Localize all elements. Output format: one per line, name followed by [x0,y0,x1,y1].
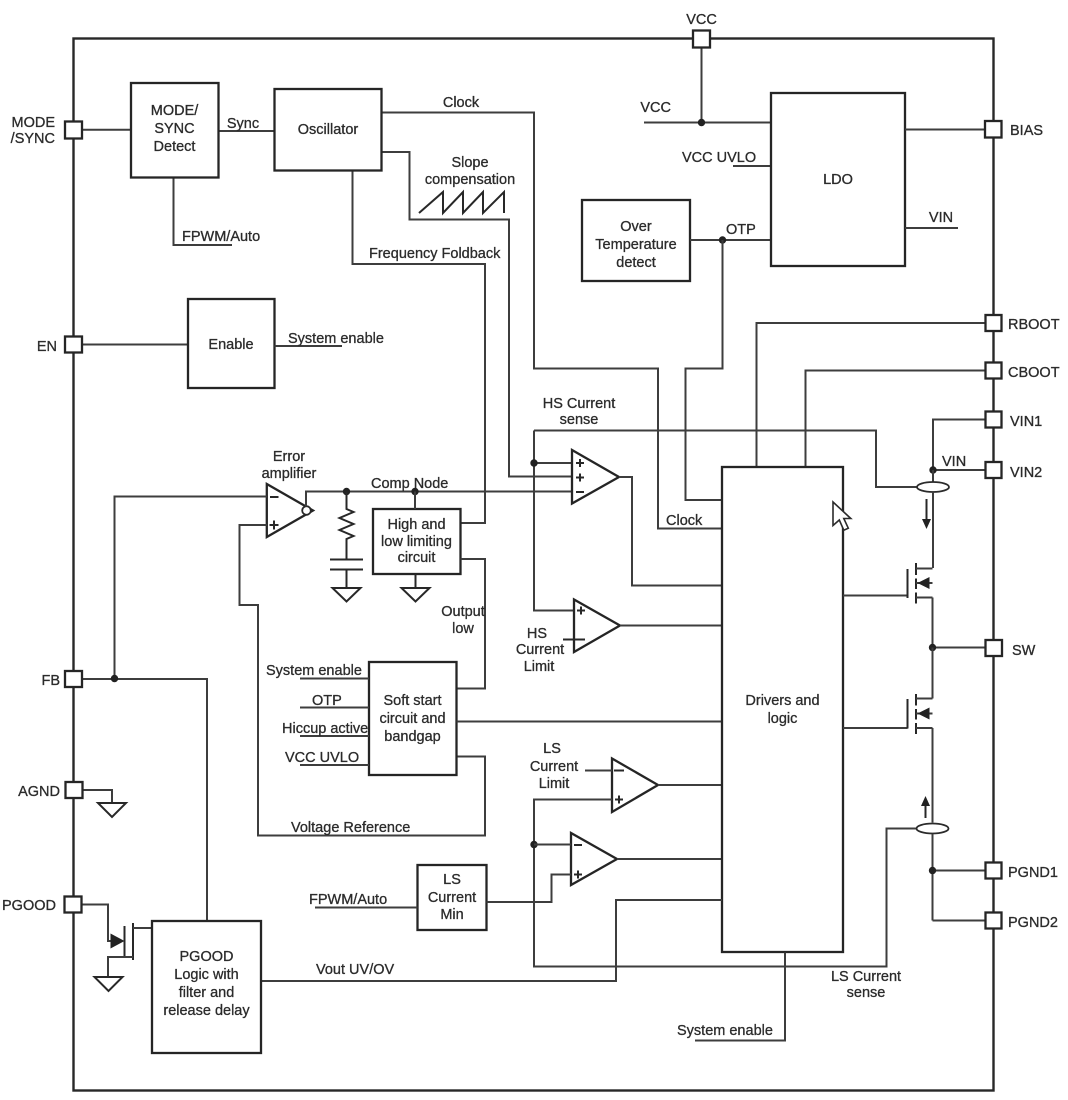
svg-text:Hiccup active: Hiccup active [282,721,368,737]
svg-text:VIN2: VIN2 [1010,465,1042,481]
svg-text:RBOOT: RBOOT [1008,317,1060,333]
svg-text:Over: Over [620,219,652,235]
svg-text:compensation: compensation [425,172,515,188]
svg-text:release delay: release delay [163,1003,250,1019]
svg-text:Voltage Reference: Voltage Reference [291,820,410,836]
svg-text:Logic with: Logic with [174,967,238,983]
svg-text:Clock: Clock [666,513,703,529]
svg-text:EN: EN [37,339,57,355]
svg-text:Soft start: Soft start [383,693,441,709]
svg-text:LS Current: LS Current [831,969,901,985]
svg-text:OTP: OTP [312,693,342,709]
svg-text:bandgap: bandgap [384,729,440,745]
svg-text:System enable: System enable [266,663,362,679]
svg-text:VCC: VCC [640,100,671,116]
svg-text:VIN: VIN [929,210,953,226]
svg-text:System enable: System enable [677,1023,773,1039]
svg-text:Output: Output [441,604,485,620]
svg-text:HS: HS [527,626,547,642]
svg-text:FB: FB [41,673,60,689]
svg-text:Limit: Limit [539,776,570,792]
svg-text:HS Current: HS Current [543,396,616,412]
svg-text:PGND2: PGND2 [1008,915,1058,931]
svg-text:High and: High and [387,517,445,533]
svg-text:Error: Error [273,449,305,465]
svg-text:VCC UVLO: VCC UVLO [682,150,756,166]
svg-text:FPWM/Auto: FPWM/Auto [309,892,387,908]
svg-text:sense: sense [847,985,886,1001]
svg-text:Current: Current [530,759,578,775]
svg-text:LDO: LDO [823,172,853,188]
svg-text:detect: detect [616,255,656,271]
svg-text:Clock: Clock [443,95,480,111]
svg-text:AGND: AGND [18,784,60,800]
svg-text:circuit: circuit [398,550,436,566]
svg-text:Oscillator: Oscillator [298,122,359,138]
svg-text:Sync: Sync [227,116,259,132]
svg-text:FPWM/Auto: FPWM/Auto [182,229,260,245]
svg-text:Current: Current [428,890,476,906]
svg-text:MODE/: MODE/ [151,103,200,119]
svg-text:circuit and: circuit and [379,711,445,727]
svg-text:PGOOD: PGOOD [180,949,234,965]
svg-text:Vout UV/OV: Vout UV/OV [316,962,395,978]
svg-text:System enable: System enable [288,331,384,347]
svg-text:Comp Node: Comp Node [371,476,448,492]
svg-text:low limiting: low limiting [381,534,452,550]
svg-text:LS: LS [443,872,461,888]
svg-text:SW: SW [1012,643,1036,659]
svg-text:Enable: Enable [208,337,253,353]
svg-text:OTP: OTP [726,222,756,238]
svg-text:/SYNC: /SYNC [11,131,55,147]
svg-text:SYNC: SYNC [154,121,194,137]
svg-text:PGND1: PGND1 [1008,865,1058,881]
svg-text:Current: Current [516,642,564,658]
svg-text:logic: logic [768,711,798,727]
svg-text:MODE: MODE [12,115,56,131]
svg-text:Temperature: Temperature [595,237,676,253]
svg-text:VIN1: VIN1 [1010,414,1042,430]
svg-text:Frequency Foldback: Frequency Foldback [369,246,501,262]
svg-text:Limit: Limit [524,659,555,675]
svg-text:low: low [452,621,474,637]
svg-text:Min: Min [440,907,463,923]
svg-text:Drivers and: Drivers and [745,693,819,709]
svg-text:VCC: VCC [686,12,717,28]
svg-text:LS: LS [543,741,561,757]
svg-text:Slope: Slope [451,155,488,171]
svg-text:Detect: Detect [154,139,196,155]
svg-text:amplifier: amplifier [262,466,317,482]
svg-text:CBOOT: CBOOT [1008,365,1060,381]
svg-text:filter and: filter and [179,985,235,1001]
svg-text:VCC UVLO: VCC UVLO [285,750,359,766]
svg-text:sense: sense [560,412,599,428]
svg-text:VIN: VIN [942,454,966,470]
svg-text:PGOOD: PGOOD [2,898,56,914]
svg-text:BIAS: BIAS [1010,123,1043,139]
